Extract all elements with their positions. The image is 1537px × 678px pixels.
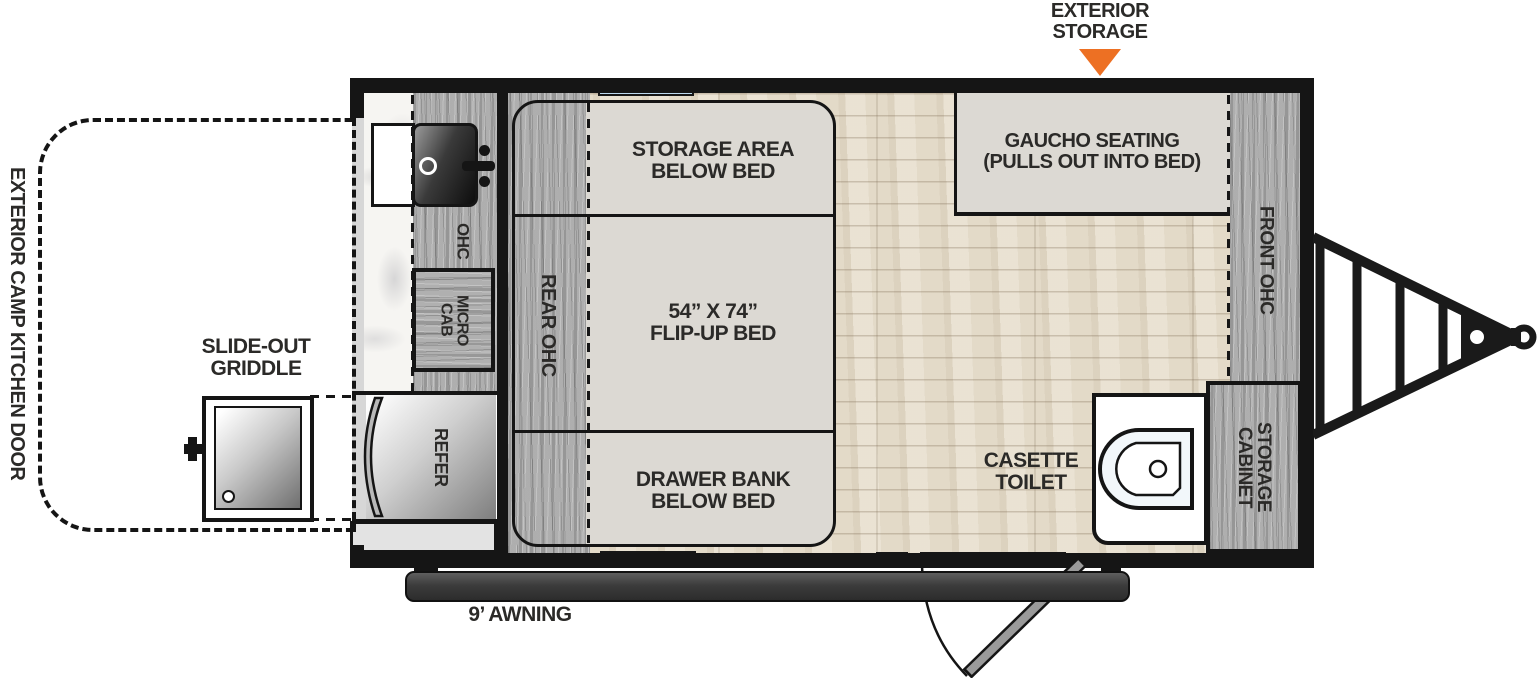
slide-out-griddle-label: SLIDE-OUT GRIDDLE	[181, 336, 331, 380]
trailer-tongue-hitch-icon	[1313, 225, 1537, 450]
sink-drain-icon	[419, 157, 437, 175]
rear-ohc-label: REAR OHC	[508, 220, 588, 430]
gaucho-seating-label: GAUCHO SEATING (PULLS OUT INTO BED)	[957, 131, 1227, 173]
wall-left-top	[350, 78, 364, 118]
storage-area-label: STORAGE AREA BELOW BED	[600, 139, 826, 183]
bed-divider-top	[513, 214, 835, 217]
front-ohc-label: FRONT OHC	[1230, 140, 1302, 380]
exterior-camp-kitchen-door-label: EXTERIOR CAMP KITCHEN DOOR	[0, 118, 34, 530]
storage-cabinet-label: STORAGE CABINET	[1206, 381, 1302, 553]
griddle-dot-icon	[222, 490, 235, 503]
casette-toilet-label: CASETTE TOILET	[971, 450, 1091, 494]
cassette-toilet-icon	[1092, 393, 1208, 543]
entry-step	[350, 521, 497, 553]
wall-top	[350, 78, 1314, 93]
refer-label: REFER	[386, 395, 496, 519]
griddle-dash-bottom	[310, 518, 352, 521]
faucet-knob-top-icon	[479, 145, 490, 156]
faucet-knob-bottom-icon	[479, 176, 490, 187]
wall-right	[1300, 78, 1314, 568]
sink-counter-flap	[371, 123, 415, 207]
flip-up-bed-label: 54” X 74” FLIP-UP BED	[600, 301, 826, 345]
micro-cab-label: MICRO CAB	[412, 268, 495, 372]
drawer-bank-label: DRAWER BANK BELOW BED	[600, 469, 826, 513]
awning-bar	[405, 571, 1130, 602]
down-triangle-icon	[1079, 49, 1121, 76]
griddle-knob-vertical	[188, 437, 197, 461]
griddle-dash-top	[310, 395, 352, 398]
awning-label: 9’ AWNING	[440, 604, 600, 626]
exterior-storage-label: EXTERIOR STORAGE	[1040, 1, 1160, 43]
floorplan-canvas: OHC MICRO CAB REFER REAR OHC STORAGE ARE…	[0, 0, 1537, 678]
wall-left-bottom	[350, 545, 364, 568]
bed-divider-bottom	[513, 430, 835, 433]
faucet-bar-icon	[462, 161, 495, 171]
ohc-label: OHC	[443, 210, 483, 272]
